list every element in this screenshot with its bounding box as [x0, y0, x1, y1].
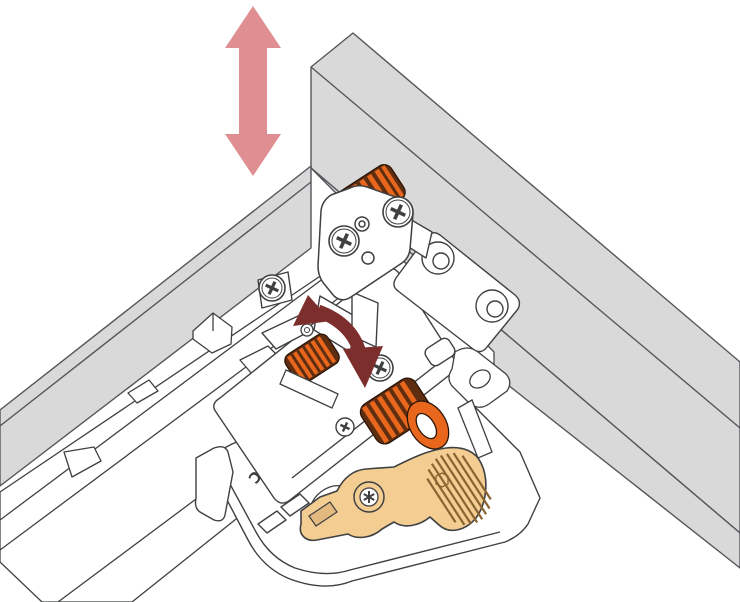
- phillips-screw-icon: [329, 226, 359, 256]
- vertical-double-arrow-icon: [225, 6, 281, 176]
- phillips-screw-icon: [259, 275, 285, 301]
- pin-hole: [301, 324, 313, 336]
- phillips-screw-icon: [336, 418, 354, 436]
- torx-screw-icon: [354, 482, 384, 512]
- phillips-screw-icon: [383, 197, 413, 227]
- illustration-canvas: DTC: [0, 0, 740, 602]
